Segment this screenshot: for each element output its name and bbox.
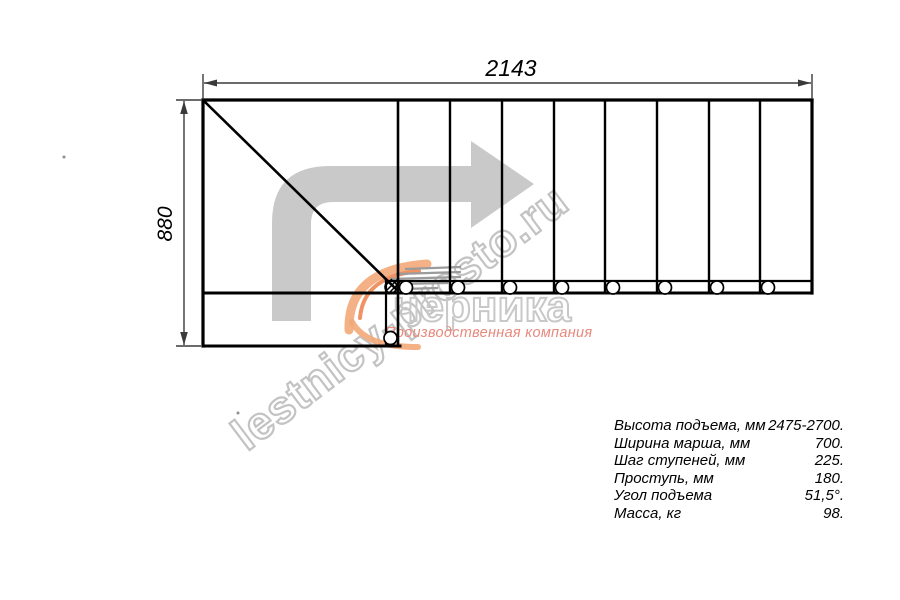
- speck-dot: [63, 156, 66, 159]
- spec-row-step-rise: Шаг ступеней, мм 225.: [614, 452, 844, 470]
- spec-table: Высота подъема, мм 2475-2700. Ширина мар…: [614, 417, 844, 522]
- spec-row-mass: Масса, кг 98.: [614, 505, 844, 523]
- dim-arrow-up-icon: [180, 101, 188, 114]
- spec-value: 98.: [823, 505, 844, 523]
- spec-row-height: Высота подъема, мм 2475-2700.: [614, 417, 844, 435]
- spec-label: Масса, кг: [614, 505, 681, 523]
- dim-arrow-right-icon: [798, 80, 811, 87]
- spec-label: Угол подъема: [614, 487, 712, 505]
- spec-label: Высота подъема, мм: [614, 417, 766, 435]
- spec-value: 51,5°.: [805, 487, 844, 505]
- stair-plan-page: lestnicy-prosto.ru черника Производствен…: [0, 0, 900, 600]
- dimension-total-width-label: 880: [154, 206, 177, 241]
- dimension-total-run-label: 2143: [484, 55, 536, 81]
- spec-row-angle: Угол подъема 51,5°.: [614, 487, 844, 505]
- dimension-total-width: [176, 100, 201, 346]
- logo-subtitle-text: Производственная компания: [385, 325, 592, 341]
- spec-value: 2475-2700.: [768, 417, 844, 435]
- spec-row-tread: Проступь, мм 180.: [614, 470, 844, 488]
- spec-value: 225.: [815, 452, 844, 470]
- dim-arrow-left-icon: [204, 80, 217, 87]
- spec-label: Шаг ступеней, мм: [614, 452, 745, 470]
- spec-value: 180.: [815, 470, 844, 488]
- speck-dot: [237, 412, 240, 415]
- logo-name-text: черника: [394, 282, 572, 331]
- spec-label: Проступь, мм: [614, 470, 714, 488]
- spec-row-flight-width: Ширина марша, мм 700.: [614, 435, 844, 453]
- spec-value: 700.: [815, 435, 844, 453]
- spec-label: Ширина марша, мм: [614, 435, 750, 453]
- dim-arrow-down-icon: [180, 332, 188, 345]
